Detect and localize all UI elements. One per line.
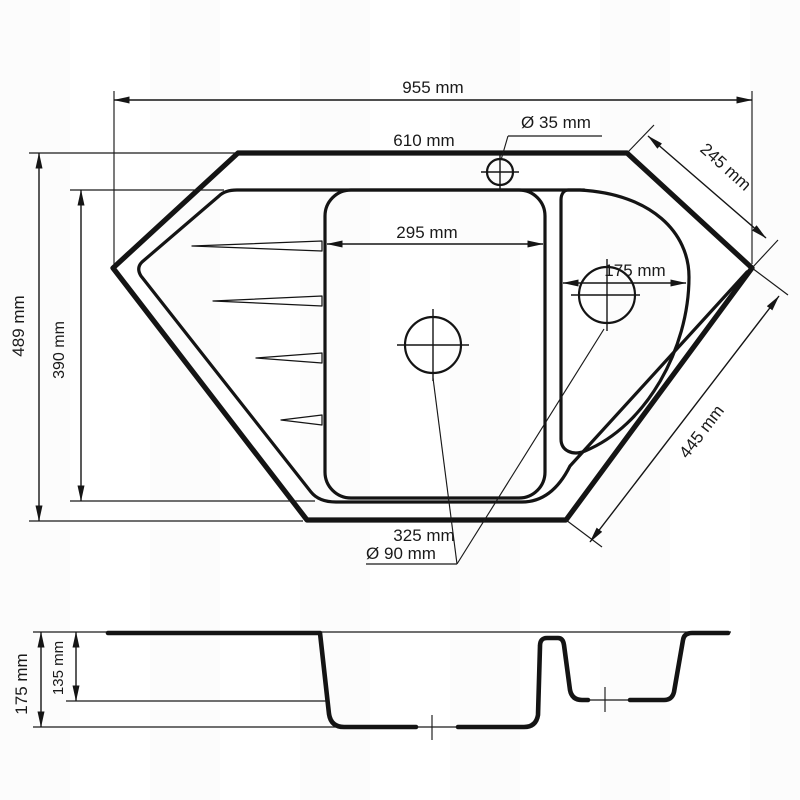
section-profile-left: [108, 633, 416, 727]
section-profile-right: [630, 633, 728, 700]
faucet-hole: [481, 153, 519, 191]
small-bowl-outline: [561, 190, 689, 453]
label-inner-height: 390 mm: [51, 321, 68, 379]
label-small-bowl-width: 175 mm: [604, 261, 665, 280]
drainer-groove: [192, 241, 322, 251]
dim-inner-height: 390 mm: [51, 190, 315, 501]
sink-technical-drawing: 955 mm 610 mm Ø 35 mm 489 mm 390 mm 295: [0, 0, 800, 800]
dim-total-depth: 175 mm: [12, 632, 41, 727]
dim-main-bowl-width: 295 mm: [327, 223, 543, 244]
drainer-groove: [213, 296, 322, 306]
label-bottom-edge: 325 mm: [393, 526, 454, 545]
label-overall-height: 489 mm: [9, 295, 28, 356]
label-main-bowl-width: 295 mm: [396, 223, 457, 242]
section-view: 175 mm 135 mm: [12, 632, 731, 740]
section-profile-middle: [458, 638, 588, 727]
label-small-bowl-depth: 135 mm: [50, 641, 67, 695]
label-overall-width: 955 mm: [402, 78, 463, 97]
main-drain-hole: [397, 309, 469, 381]
label-top-edge: 610 mm: [393, 131, 454, 150]
dim-top-right-edge: 245 mm: [627, 125, 778, 268]
label-drain-diameter: Ø 90 mm: [366, 544, 436, 563]
dim-small-bowl-depth: 135 mm: [50, 632, 76, 701]
dim-small-bowl-width: 175 mm: [563, 261, 686, 283]
drawing-canvas: 955 mm 610 mm Ø 35 mm 489 mm 390 mm 295: [0, 0, 800, 800]
top-view: 955 mm 610 mm Ø 35 mm 489 mm 390 mm 295: [9, 78, 788, 564]
label-bottom-right-edge: 445 mm: [675, 402, 727, 462]
drainer-groove: [256, 353, 322, 363]
dim-bottom-right-edge: 445 mm: [566, 268, 788, 547]
label-total-depth: 175 mm: [12, 653, 31, 714]
drainer-groove: [281, 415, 322, 425]
label-faucet-hole: Ø 35 mm: [521, 113, 591, 132]
